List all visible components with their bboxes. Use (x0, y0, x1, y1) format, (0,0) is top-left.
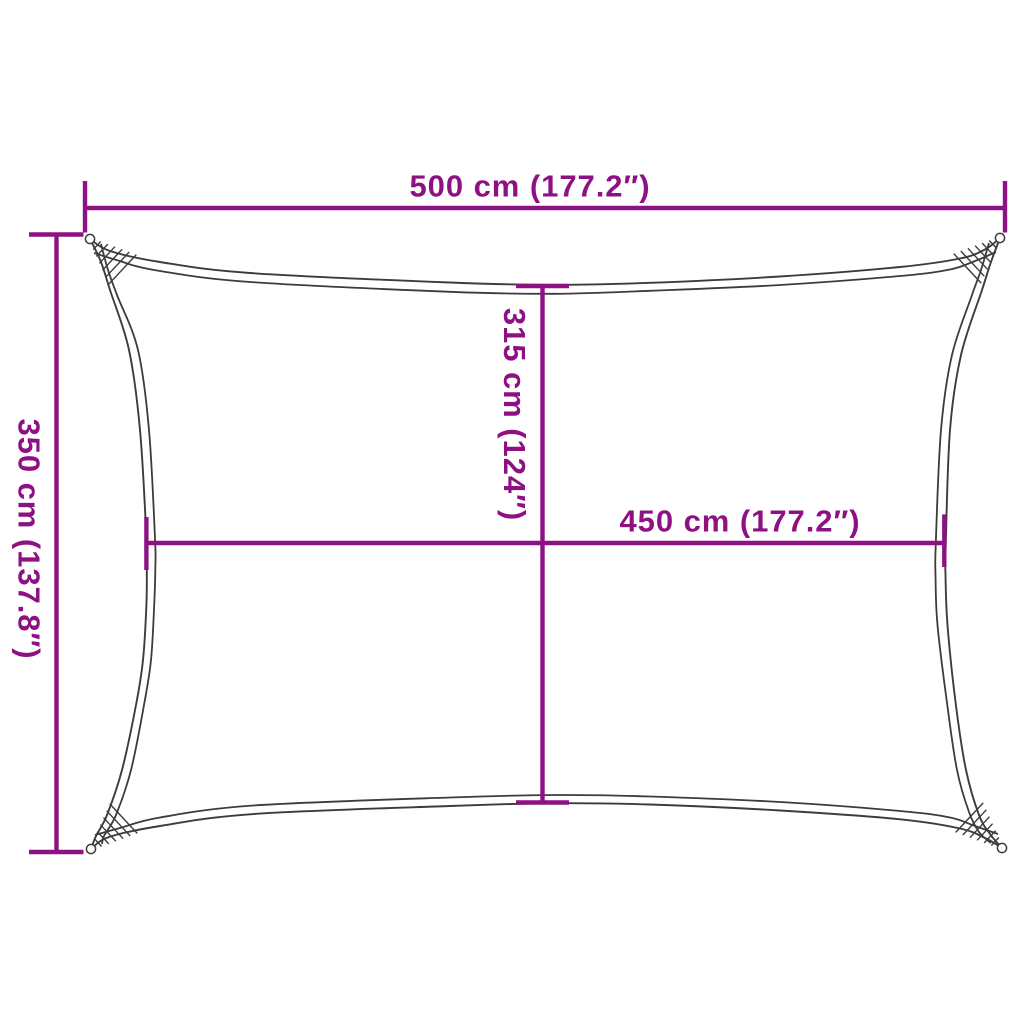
svg-text:315 cm (124″): 315 cm (124″) (497, 308, 532, 521)
svg-text:450 cm (177.2″): 450 cm (177.2″) (619, 504, 860, 539)
svg-text:500 cm (177.2″): 500 cm (177.2″) (409, 169, 650, 204)
svg-text:350 cm (137.8″): 350 cm (137.8″) (12, 418, 47, 659)
